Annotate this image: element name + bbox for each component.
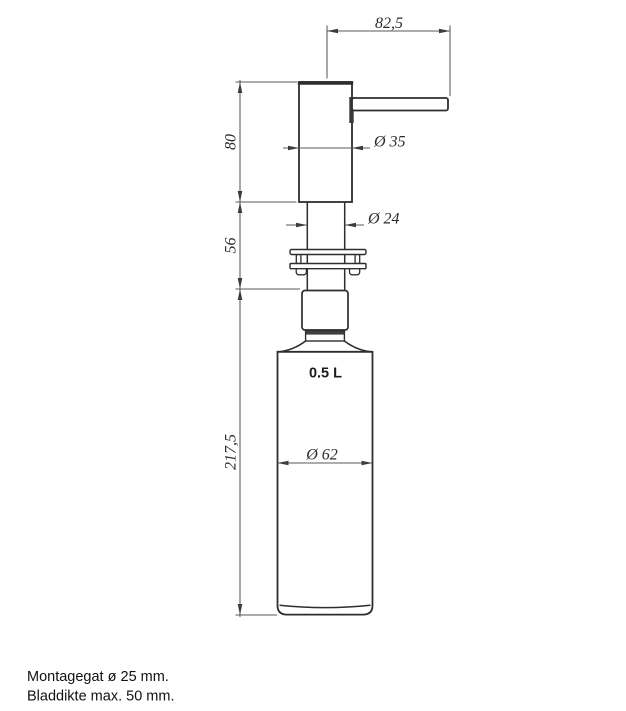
arrowhead-down	[238, 278, 243, 289]
arrowhead-up	[238, 82, 243, 93]
dispenser-object	[278, 82, 449, 615]
dim-bottle-height-label: 217,5	[223, 434, 240, 470]
bottle-shoulder-left	[279, 341, 306, 352]
dim-pump-height-label: 80	[223, 134, 240, 150]
collar	[302, 291, 348, 331]
arrowhead-right	[345, 223, 356, 228]
bottle-body	[278, 352, 373, 615]
dia-stem-label: Ø 24	[367, 211, 400, 228]
volume-label: 0.5 L	[309, 366, 342, 382]
arrowhead-down	[238, 191, 243, 202]
flange-clip-left	[296, 269, 306, 275]
dia-bottle-label: Ø 62	[305, 447, 338, 464]
flange-post-left	[296, 255, 301, 264]
spout	[352, 98, 448, 111]
flange-post-right	[355, 255, 360, 264]
dim-spout-reach-label: 82,5	[375, 15, 403, 32]
drawing-svg: 82,5 Ø 35 Ø 24 Ø 62 80 56 217,5	[0, 0, 626, 711]
dim-stem-length-label: 56	[223, 238, 240, 254]
bottle-shoulder-right	[344, 341, 371, 352]
dia-pump-label: Ø 35	[373, 134, 406, 151]
dimension-stem-diameter: Ø 24	[286, 211, 400, 228]
arrowhead-left	[288, 146, 299, 151]
arrowhead-up	[238, 202, 243, 213]
soap-dispenser-technical-drawing: 82,5 Ø 35 Ø 24 Ø 62 80 56 217,5	[0, 0, 626, 711]
pump-head	[299, 82, 352, 202]
flange-clip-right	[350, 269, 360, 275]
arrowhead-left	[296, 223, 307, 228]
arrowhead-right	[439, 29, 450, 34]
arrowhead-up	[238, 289, 243, 300]
note-blade-thickness: Bladdikte max. 50 mm.	[27, 689, 174, 705]
flange-bottom-plate	[290, 264, 366, 269]
note-mounting-hole: Montagegat ø 25 mm.	[27, 669, 169, 685]
arrowhead-down	[238, 604, 243, 615]
arrowhead-left	[327, 29, 338, 34]
arrowhead-right	[352, 146, 363, 151]
flange-top-plate	[290, 250, 366, 255]
